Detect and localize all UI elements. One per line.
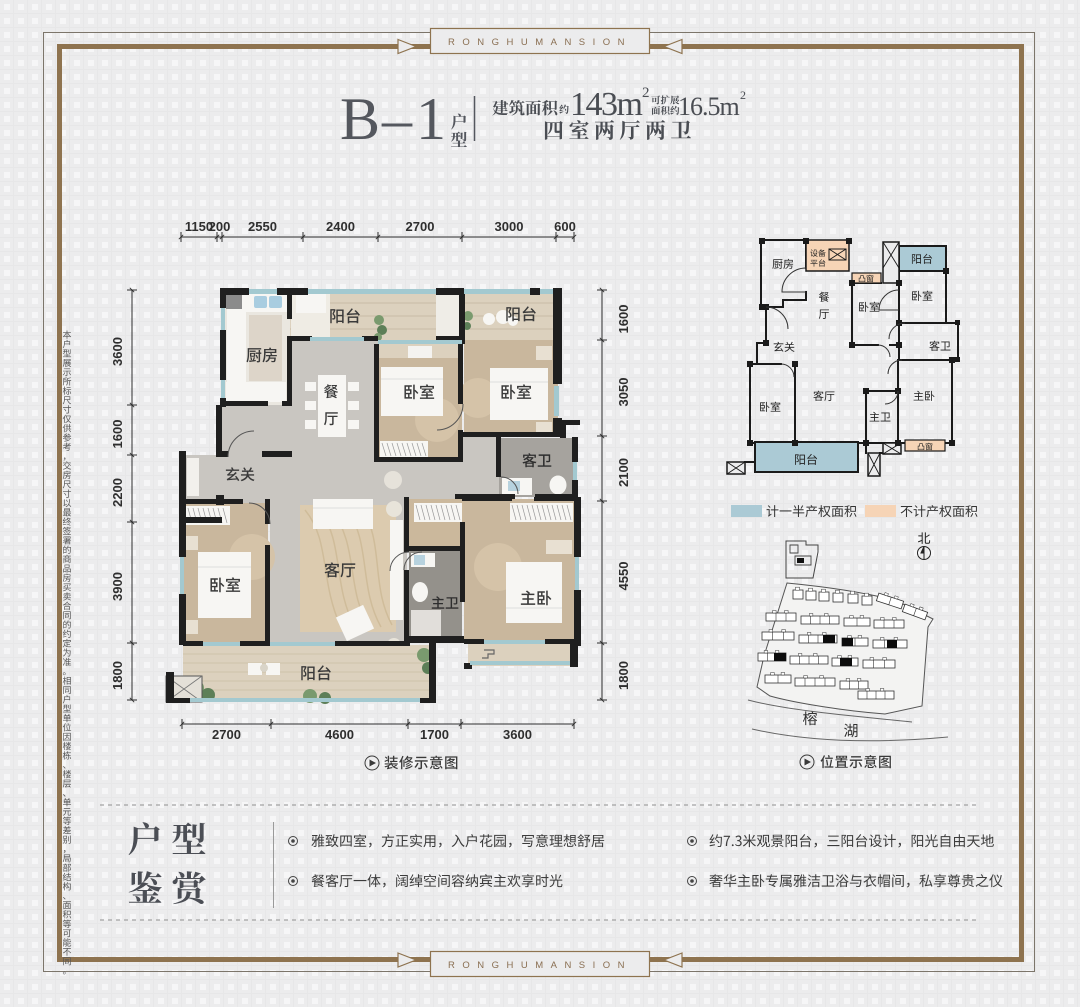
svg-text:4600: 4600 — [325, 727, 354, 742]
svg-text:3050: 3050 — [616, 378, 631, 407]
svg-text:RONGHUMANSION: RONGHUMANSION — [448, 37, 632, 48]
svg-text:2700: 2700 — [406, 219, 435, 234]
svg-text:3600: 3600 — [110, 337, 125, 366]
svg-text:1600: 1600 — [616, 305, 631, 334]
svg-text:1600: 1600 — [110, 420, 125, 449]
svg-text:1700: 1700 — [420, 727, 449, 742]
svg-text:2: 2 — [642, 85, 650, 101]
svg-text:RONGHUMANSION: RONGHUMANSION — [448, 960, 632, 971]
svg-text:2400: 2400 — [326, 219, 355, 234]
svg-text:3000: 3000 — [495, 219, 524, 234]
svg-text:600: 600 — [554, 219, 576, 234]
svg-text:2: 2 — [740, 88, 746, 102]
svg-text:16.5m: 16.5m — [678, 92, 740, 121]
svg-text:200: 200 — [209, 219, 231, 234]
svg-text:2700: 2700 — [212, 727, 241, 742]
svg-text:1800: 1800 — [110, 661, 125, 690]
svg-text:2550: 2550 — [248, 219, 277, 234]
svg-text:4550: 4550 — [616, 562, 631, 591]
svg-text:1800: 1800 — [616, 661, 631, 690]
svg-text:2200: 2200 — [110, 478, 125, 507]
svg-text:143m: 143m — [570, 86, 643, 123]
svg-text:2100: 2100 — [616, 458, 631, 487]
svg-text:3900: 3900 — [110, 572, 125, 601]
svg-text:3600: 3600 — [503, 727, 532, 742]
svg-text:B–1: B–1 — [340, 86, 446, 152]
